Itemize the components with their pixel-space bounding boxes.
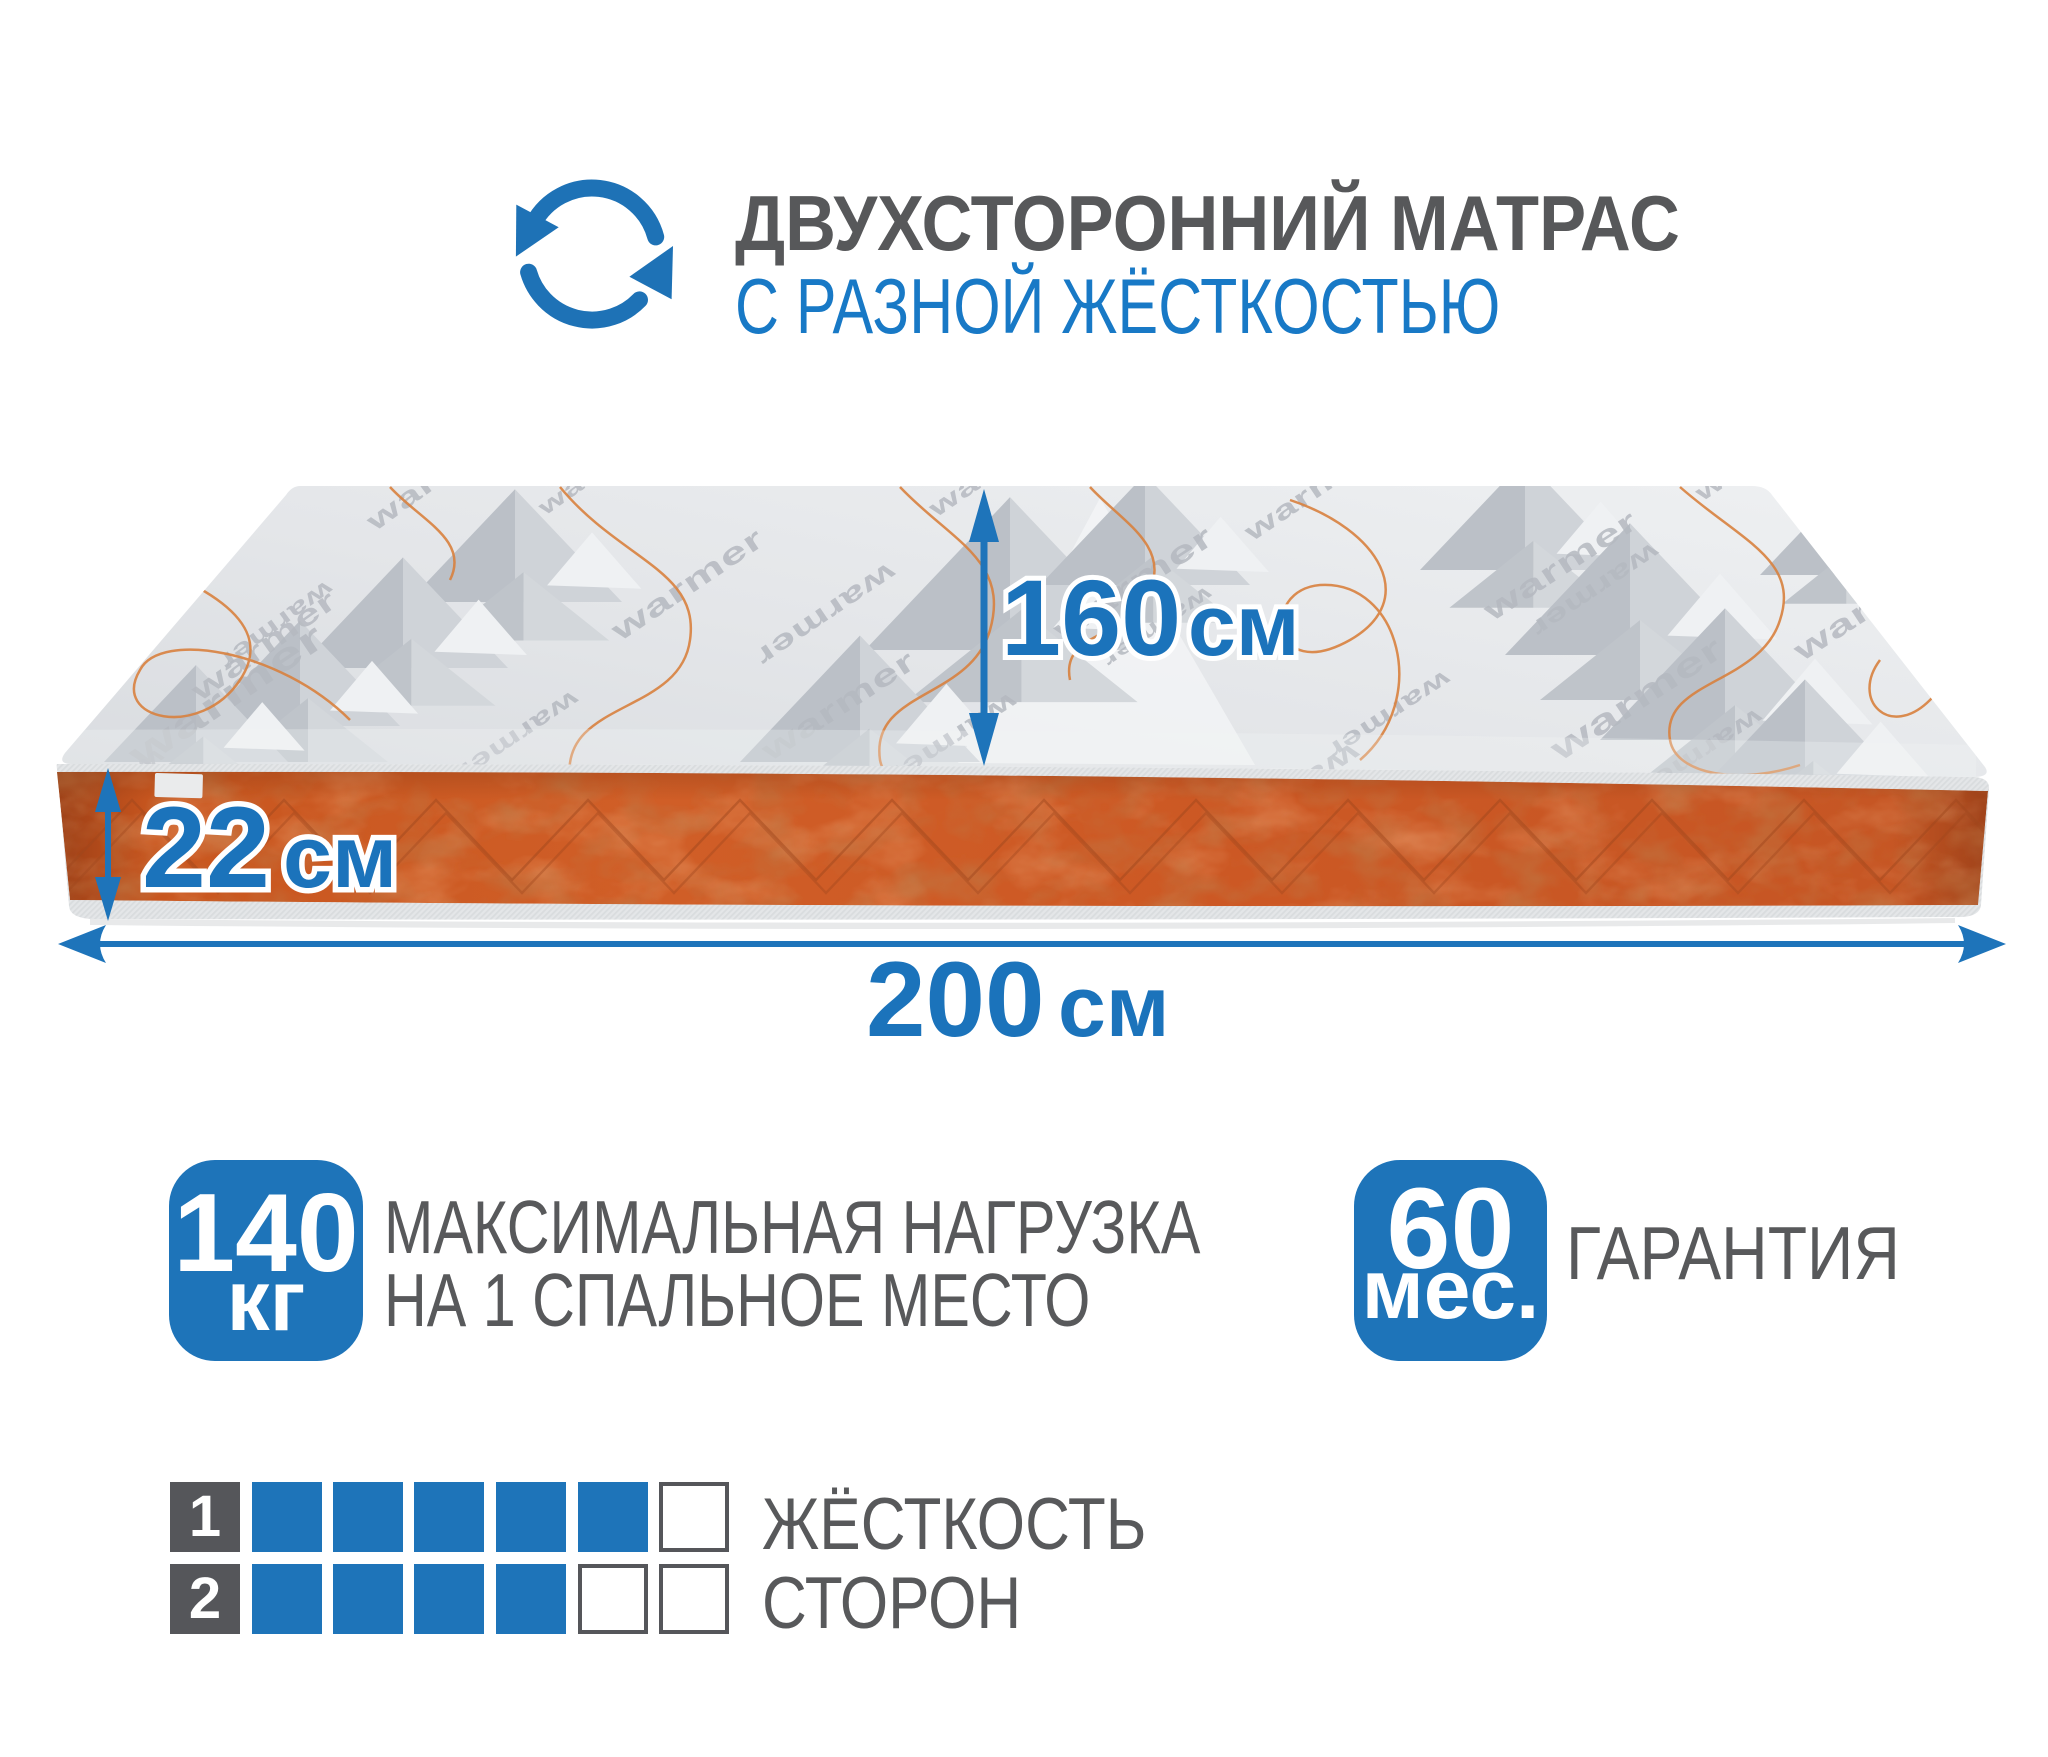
svg-text:см: см	[283, 807, 397, 906]
svg-text:см: см	[1058, 959, 1169, 1055]
svg-text:22: 22	[142, 784, 270, 912]
svg-text:200: 200	[866, 939, 1045, 1059]
svg-text:160: 160	[1001, 557, 1181, 678]
svg-text:см: см	[1188, 578, 1299, 674]
